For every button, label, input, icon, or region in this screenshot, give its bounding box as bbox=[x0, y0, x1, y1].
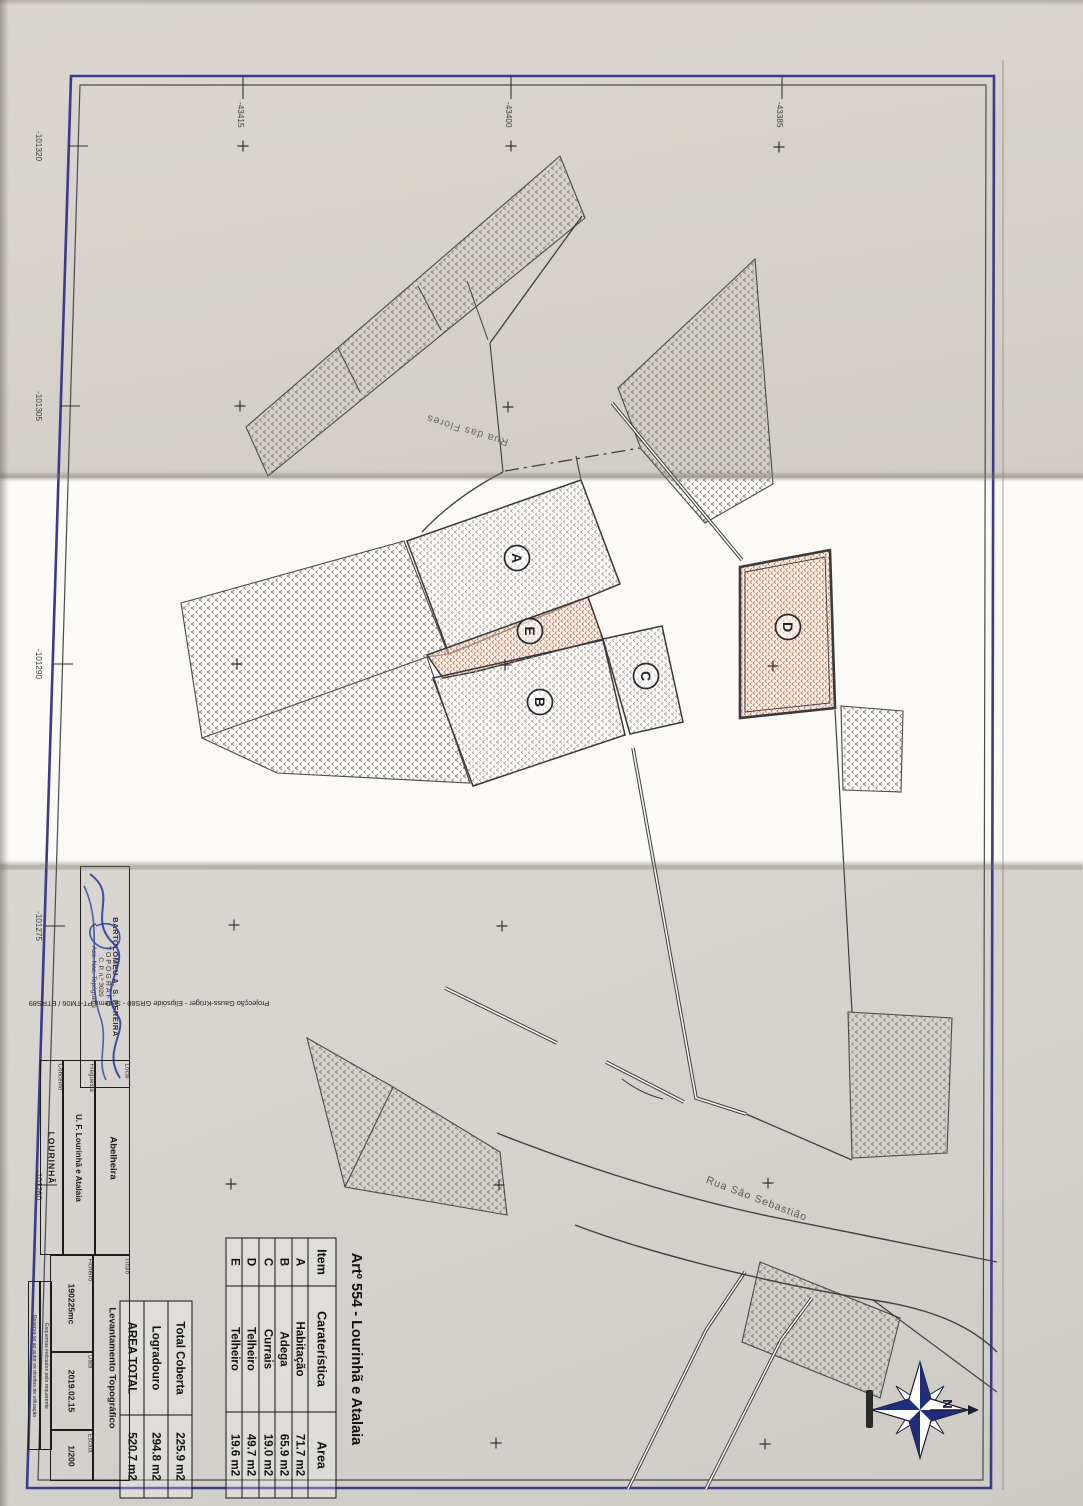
grid-label: -43400 bbox=[504, 102, 513, 128]
field-local: Local Abelheira bbox=[95, 1060, 130, 1255]
cell-caracteristica: Telheiro bbox=[226, 1286, 242, 1412]
label-E: E bbox=[522, 626, 538, 635]
cell-area: 65.9 m2 bbox=[275, 1412, 291, 1498]
field-concelho: Concelho LOURINHÃ bbox=[40, 1060, 63, 1255]
areas-table-header-row: Item Caraterística Area bbox=[308, 1238, 336, 1498]
limit-dash-dot-line bbox=[505, 448, 640, 471]
scan-edge-top bbox=[0, 0, 1083, 6]
field-label: Data bbox=[86, 1355, 92, 1368]
cell-caracteristica: Adega bbox=[275, 1286, 291, 1412]
table-row: E Telheiro 19.6 m2 bbox=[226, 1238, 242, 1498]
field-value: Abelheira bbox=[107, 1136, 118, 1179]
table-row: Total Coberta 225.9 m2 bbox=[168, 1301, 192, 1498]
cell-caracteristica: Habitação bbox=[291, 1286, 307, 1412]
cell-item: C bbox=[258, 1238, 274, 1286]
projection-note-wrap: Projecção Gauss-Krüger - Elipsóide GRS80… bbox=[142, 876, 156, 1138]
col-area: Area bbox=[308, 1412, 336, 1498]
surveyor-stamp-box: BARTOLOMEU A. S. PEREIRA TOPÓGRAFO C. P.… bbox=[80, 866, 130, 1088]
label-A: A bbox=[509, 553, 525, 563]
table-row: C Currais 19.0 m2 bbox=[258, 1238, 274, 1498]
projection-note: Projecção Gauss-Krüger - Elipsóide GRS80… bbox=[29, 999, 269, 1008]
cell-item: E bbox=[226, 1238, 242, 1286]
field-value: 2019.02.15 bbox=[67, 1370, 77, 1413]
grid-label: -101275 bbox=[34, 911, 43, 941]
plan-drawing: -101320 -101305 -101290 -101275 -101260 … bbox=[0, 0, 1083, 1506]
table-row: D Telheiro 49.7 m2 bbox=[242, 1238, 258, 1498]
field-label: Concelho bbox=[56, 1063, 62, 1090]
table-row: Logradouro 294.8 m2 bbox=[144, 1301, 168, 1498]
scan-page-edge-right bbox=[1002, 60, 1004, 1490]
summary-table-wrap: Total Coberta 225.9 m2 Logradouro 294.8 … bbox=[120, 1300, 192, 1497]
cell-caracteristica: Telheiro bbox=[242, 1286, 258, 1412]
paper-fold-shadow-2 bbox=[0, 861, 1083, 870]
plan-title: Artº 554 - Lourinhã e Atalaia bbox=[345, 1234, 367, 1464]
cell-item: D bbox=[242, 1238, 258, 1286]
cell-area: 19.6 m2 bbox=[226, 1412, 242, 1498]
summary-label: Logradouro bbox=[144, 1301, 168, 1415]
col-caracteristica: Caraterística bbox=[308, 1286, 336, 1412]
grid-label: -101320 bbox=[34, 131, 43, 161]
field-label: Freguesia bbox=[88, 1063, 94, 1091]
paper-fold-shadow-1 bbox=[0, 471, 1083, 481]
field-ficheiro: Ficheiro 190225mc bbox=[50, 1255, 93, 1352]
note-box-1: Esquemas indicados pelo requerente bbox=[40, 1281, 52, 1450]
field-value: Levantamento Topográfico bbox=[106, 1307, 117, 1428]
areas-table: Item Caraterística Area A Habitação 71.7… bbox=[225, 1237, 336, 1498]
field-value: U. F. Lourinhã e Atalaia bbox=[75, 1114, 84, 1202]
parcel-hatch-southeast bbox=[848, 1012, 952, 1158]
field-titulo: Título Levantamento Topográfico bbox=[93, 1255, 130, 1481]
neighbour-parcels bbox=[181, 156, 952, 1398]
field-value: 190225mc bbox=[67, 1283, 77, 1324]
note-box-2: Reserva-se ao autor os direitos de utili… bbox=[28, 1281, 40, 1450]
field-escala: Escala 1/200 bbox=[50, 1430, 93, 1481]
scan-edge-left bbox=[0, 0, 9, 1506]
surveyed-buildings bbox=[407, 480, 835, 786]
cell-item: A bbox=[291, 1238, 307, 1286]
grid-label: -43385 bbox=[775, 102, 784, 128]
summary-value: 294.8 m2 bbox=[144, 1415, 168, 1498]
cell-area: 19.0 m2 bbox=[258, 1412, 274, 1498]
parcel-hatch-southwest bbox=[307, 1038, 507, 1215]
col-item: Item bbox=[308, 1238, 336, 1286]
field-value: LOURINHÃ bbox=[47, 1131, 57, 1184]
grid-label: -101290 bbox=[34, 649, 43, 679]
parcel-hatch-north bbox=[246, 156, 585, 476]
north-arrow-head bbox=[968, 1405, 979, 1415]
grid-label: -101305 bbox=[34, 391, 43, 421]
cell-caracteristica: Currais bbox=[258, 1286, 274, 1412]
summary-label: Total Coberta bbox=[168, 1301, 192, 1415]
parcel-hatch-south bbox=[742, 1262, 900, 1398]
signature-scribble bbox=[80, 866, 130, 1088]
cell-area: 49.7 m2 bbox=[242, 1412, 258, 1498]
parcel-hatch-east-small bbox=[841, 706, 903, 792]
field-value: 1/200 bbox=[67, 1445, 77, 1466]
table-row: B Adega 65.9 m2 bbox=[275, 1238, 291, 1498]
street-name-rua-sao-sebastiao: Rua São Sebastião bbox=[704, 1174, 809, 1224]
field-label: Título bbox=[123, 1258, 129, 1274]
field-data: Data 2019.02.15 bbox=[50, 1352, 93, 1430]
scanned-survey-sheet: -101320 -101305 -101290 -101275 -101260 … bbox=[0, 0, 1083, 1506]
note-text: Esquemas indicados pelo requerente bbox=[43, 1323, 49, 1409]
label-D: D bbox=[780, 622, 796, 632]
field-label: Ficheiro bbox=[86, 1258, 92, 1281]
table-row: A Habitação 71.7 m2 bbox=[291, 1238, 307, 1498]
areas-table-wrap: Item Caraterística Area A Habitação 71.7… bbox=[225, 1237, 336, 1497]
grid-label: -43415 bbox=[236, 102, 245, 128]
cell-area: 71.7 m2 bbox=[291, 1412, 307, 1498]
cell-item: B bbox=[275, 1238, 291, 1286]
field-label: Escala bbox=[86, 1433, 92, 1452]
compass-scale-bar bbox=[866, 1390, 873, 1428]
note-text: Reserva-se ao autor os direitos de utili… bbox=[31, 1314, 37, 1416]
parcel-hatch-northeast bbox=[618, 259, 773, 523]
field-label: Local bbox=[123, 1063, 129, 1078]
summary-value: 225.9 m2 bbox=[168, 1415, 192, 1498]
label-C: C bbox=[638, 671, 654, 681]
north-label: N bbox=[940, 1399, 955, 1408]
label-B: B bbox=[532, 697, 548, 707]
field-freguesia: Freguesia U. F. Lourinhã e Atalaia bbox=[63, 1060, 95, 1255]
